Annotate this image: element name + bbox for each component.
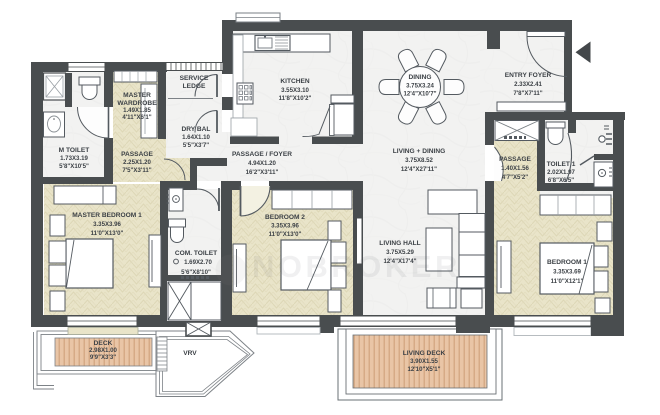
svg-text:5'6"X8'10": 5'6"X8'10" [181, 269, 211, 276]
svg-text:7'5"X3'11": 7'5"X3'11" [122, 167, 151, 174]
svg-text:M TOILET: M TOILET [59, 147, 90, 154]
svg-text:4'7"X5'2": 4'7"X5'2" [502, 174, 528, 181]
svg-text:MASTER BEDROOM 1: MASTER BEDROOM 1 [72, 212, 142, 219]
svg-text:3.35X3.96: 3.35X3.96 [271, 223, 299, 230]
svg-text:DINING: DINING [408, 74, 431, 81]
svg-text:PASSAGE: PASSAGE [121, 151, 153, 158]
svg-text:11'0"X13'0": 11'0"X13'0" [269, 231, 302, 238]
svg-text:4.94X1.20: 4.94X1.20 [248, 160, 276, 167]
svg-text:PASSAGE: PASSAGE [499, 156, 531, 163]
svg-text:MASTER: MASTER [123, 92, 151, 99]
svg-text:3.55X3.10: 3.55X3.10 [281, 87, 309, 94]
svg-text:2.25X1.20: 2.25X1.20 [123, 159, 151, 166]
svg-text:1.69X2.70: 1.69X2.70 [184, 259, 212, 266]
svg-text:DRY BAL: DRY BAL [182, 126, 211, 133]
svg-text:1.73X3.19: 1.73X3.19 [60, 155, 88, 162]
svg-text:LEDGE: LEDGE [183, 83, 206, 90]
svg-text:1.64X1.10: 1.64X1.10 [182, 134, 210, 141]
svg-text:2.98X1.00: 2.98X1.00 [89, 347, 117, 354]
svg-text:2.33X2.41: 2.33X2.41 [514, 81, 542, 88]
svg-text:11'0"X12'1": 11'0"X12'1" [551, 278, 584, 285]
svg-text:BEDROOM 1: BEDROOM 1 [547, 259, 587, 266]
svg-text:KITCHEN: KITCHEN [280, 78, 310, 85]
svg-text:LIVING HALL: LIVING HALL [379, 240, 420, 247]
svg-text:TOILET 1: TOILET 1 [547, 161, 576, 168]
svg-text:1.40X1.56: 1.40X1.56 [501, 165, 529, 172]
svg-text:6'8"X6'5": 6'8"X6'5" [548, 177, 574, 184]
svg-text:9'9"X3'3": 9'9"X3'3" [90, 354, 116, 361]
svg-text:PASSAGE / FOYER: PASSAGE / FOYER [232, 151, 292, 158]
svg-text:VRV: VRV [183, 350, 197, 357]
svg-text:16'2"X3'11": 16'2"X3'11" [246, 169, 279, 176]
svg-text:DECK: DECK [94, 340, 113, 347]
svg-text:3.90X1.55: 3.90X1.55 [410, 358, 438, 365]
svg-text:3.75X3.24: 3.75X3.24 [406, 83, 434, 90]
svg-text:LIVING + DINING: LIVING + DINING [393, 148, 446, 155]
svg-text:5'5"X3'7": 5'5"X3'7" [183, 142, 209, 149]
svg-text:2.02X1.97: 2.02X1.97 [547, 169, 575, 176]
svg-text:11'8"X10'2": 11'8"X10'2" [279, 95, 312, 102]
svg-text:NOBROKER: NOBROKER [252, 249, 461, 284]
svg-text:4'11"X6'1": 4'11"X6'1" [122, 114, 151, 121]
svg-text:12'4"X17'4": 12'4"X17'4" [383, 258, 416, 265]
svg-text:LIVING DECK: LIVING DECK [403, 350, 446, 357]
svg-text:3.35X3.69: 3.35X3.69 [553, 269, 581, 276]
svg-text:5'8"X10'5": 5'8"X10'5" [59, 163, 89, 170]
svg-text:11'0"X13'0": 11'0"X13'0" [91, 230, 124, 237]
svg-text:3.35X3.96: 3.35X3.96 [93, 221, 121, 228]
svg-text:WARDROBE: WARDROBE [117, 100, 157, 107]
svg-text:COM. TOILET: COM. TOILET [175, 250, 217, 257]
svg-text:1.49X1.85: 1.49X1.85 [123, 107, 151, 114]
svg-text:ENTRY FOYER: ENTRY FOYER [505, 72, 552, 79]
svg-text:3.75X8.52: 3.75X8.52 [405, 157, 433, 164]
svg-text:3.75X5.29: 3.75X5.29 [386, 249, 414, 256]
svg-text:12'4"X27'11": 12'4"X27'11" [401, 166, 437, 173]
svg-text:7'8"X7'11": 7'8"X7'11" [513, 90, 542, 97]
svg-text:SERVICE: SERVICE [180, 75, 209, 82]
svg-text:12'10"X5'1": 12'10"X5'1" [407, 366, 440, 373]
svg-text:12'4"X10'7": 12'4"X10'7" [403, 91, 436, 98]
svg-text:BEDROOM 2: BEDROOM 2 [265, 214, 305, 221]
